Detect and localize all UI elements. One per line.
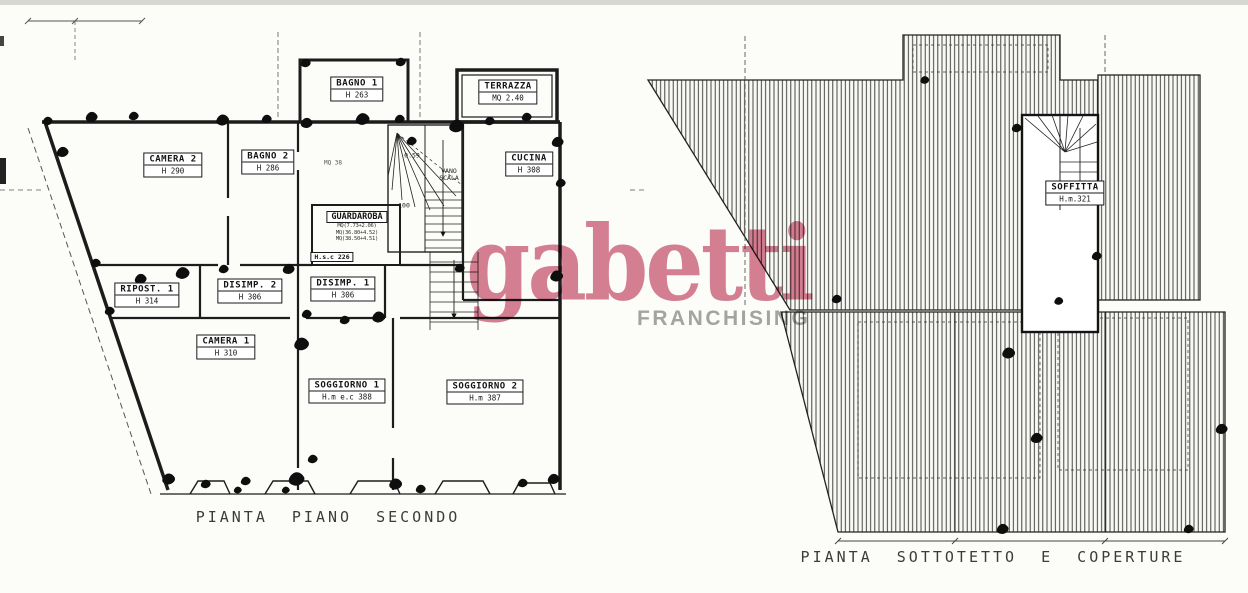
room-label-disimpegno-1: DISIMP. 1 H 306 bbox=[310, 277, 375, 302]
room-name: DISIMP. 1 bbox=[311, 278, 374, 290]
room-height: H.m.321 bbox=[1046, 194, 1103, 205]
room-name: DISIMP. 2 bbox=[218, 280, 281, 292]
room-height: H 286 bbox=[242, 163, 293, 174]
room-label-terrazza: TERRAZZA MQ 2.40 bbox=[478, 80, 537, 105]
stairwell-label: VANO SCALA bbox=[439, 168, 459, 182]
roof-lower bbox=[781, 312, 1225, 532]
corridor-note: MQ 38 bbox=[324, 160, 342, 167]
room-label-cucina: CUCINA H 308 bbox=[505, 152, 553, 177]
room-height: H.m 387 bbox=[447, 393, 522, 404]
room-label-disimpegno-2: DISIMP. 2 H 306 bbox=[217, 279, 282, 304]
room-height: H.m e.c 388 bbox=[309, 392, 384, 403]
right-plan-roof bbox=[630, 35, 1228, 544]
room-height: H 306 bbox=[311, 290, 374, 301]
dimension-100: 100 bbox=[398, 203, 410, 210]
room-label-soffitta: SOFFITTA H.m.321 bbox=[1045, 181, 1104, 206]
room-name: GUARDAROBA bbox=[326, 211, 387, 223]
room-height: H 306 bbox=[218, 292, 281, 303]
room-label-ripostiglio-1: RIPOST. 1 H 314 bbox=[114, 283, 179, 308]
guardaroba-height-box: H.s.c 226 bbox=[310, 252, 353, 262]
floorplan-sheet: CAMERA 2 H 290 BAGNO 2 H 286 BAGNO 1 H 2… bbox=[0, 0, 1248, 593]
room-label-guardaroba: GUARDAROBA MQ(7.73+2.06) MQ(36.80+4.52) … bbox=[326, 211, 387, 243]
room-name: SOFFITTA bbox=[1046, 182, 1103, 194]
room-label-soggiorno-2: SOGGIORNO 2 H.m 387 bbox=[446, 380, 523, 405]
title-piano-secondo: PIANTA PIANO SECONDO bbox=[196, 508, 461, 526]
roof-right bbox=[1098, 75, 1200, 300]
room-height: H 310 bbox=[197, 348, 254, 359]
stair-level-mark: 0.59 bbox=[404, 153, 420, 160]
room-label-bagno-1: BAGNO 1 H 263 bbox=[330, 77, 383, 102]
stairwell-label-line2: SCALA bbox=[439, 175, 459, 182]
title-sottotetto: PIANTA SOTTOTETTO E COPERTURE bbox=[801, 548, 1186, 566]
scan-specks bbox=[0, 36, 6, 184]
room-height: H 290 bbox=[144, 166, 201, 177]
room-area-line: MQ(38.50+4.51) bbox=[326, 236, 387, 243]
room-label-bagno-2: BAGNO 2 H 286 bbox=[241, 150, 294, 175]
room-name: CAMERA 2 bbox=[144, 154, 201, 166]
room-name: RIPOST. 1 bbox=[115, 284, 178, 296]
room-name: CUCINA bbox=[506, 153, 552, 165]
room-name: TERRAZZA bbox=[479, 81, 536, 93]
room-name: CAMERA 1 bbox=[197, 336, 254, 348]
floorplan-linework bbox=[0, 0, 1248, 593]
room-label-soggiorno-1: SOGGIORNO 1 H.m e.c 388 bbox=[308, 379, 385, 404]
room-name: BAGNO 2 bbox=[242, 151, 293, 163]
room-height: H 314 bbox=[115, 296, 178, 307]
room-name: BAGNO 1 bbox=[331, 78, 382, 90]
room-height: H 263 bbox=[331, 90, 382, 101]
room-height: H 308 bbox=[506, 165, 552, 176]
room-area: MQ 2.40 bbox=[479, 93, 536, 104]
room-label-camera-1: CAMERA 1 H 310 bbox=[196, 335, 255, 360]
room-name: SOGGIORNO 2 bbox=[447, 381, 522, 393]
room-label-camera-2: CAMERA 2 H 290 bbox=[143, 153, 202, 178]
room-name: SOGGIORNO 1 bbox=[309, 380, 384, 392]
